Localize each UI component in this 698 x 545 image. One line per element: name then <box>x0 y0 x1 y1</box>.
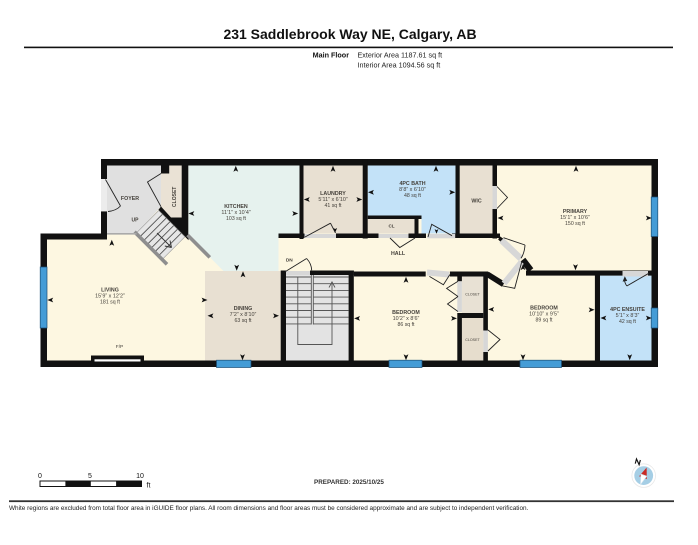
svg-text:41 sq ft: 41 sq ft <box>324 203 342 209</box>
svg-text:86 sq ft: 86 sq ft <box>397 322 415 328</box>
svg-text:CLOSET: CLOSET <box>465 292 480 296</box>
svg-text:PREPARED: 2025/10/25: PREPARED: 2025/10/25 <box>314 479 384 486</box>
svg-text:WIC: WIC <box>471 199 481 205</box>
svg-text:F/P: F/P <box>116 344 123 350</box>
svg-text:ft: ft <box>147 483 151 490</box>
svg-text:103 sq ft: 103 sq ft <box>226 216 246 222</box>
svg-text:0: 0 <box>38 473 42 480</box>
svg-text:5: 5 <box>88 473 92 480</box>
svg-text:HALL: HALL <box>391 251 406 257</box>
svg-text:48 sq ft: 48 sq ft <box>404 193 422 199</box>
svg-text:Exterior Area 1187.61 sq ft: Exterior Area 1187.61 sq ft <box>358 51 443 60</box>
svg-text:42 sq ft: 42 sq ft <box>619 319 637 325</box>
svg-text:181 sq ft: 181 sq ft <box>100 300 120 306</box>
svg-text:DN: DN <box>286 257 293 263</box>
svg-text:UP: UP <box>132 218 140 224</box>
svg-text:CLOSET: CLOSET <box>172 187 178 207</box>
svg-text:63 sq ft: 63 sq ft <box>234 318 252 324</box>
svg-text:Main Floor: Main Floor <box>313 51 350 60</box>
svg-text:231 Saddlebrook Way NE, Calgar: 231 Saddlebrook Way NE, Calgary, AB <box>223 26 476 42</box>
svg-text:FOYER: FOYER <box>121 196 139 202</box>
svg-text:White regions are excluded fro: White regions are excluded from total fl… <box>9 505 529 512</box>
svg-text:Interior Area 1094.56 sq ft: Interior Area 1094.56 sq ft <box>358 60 441 69</box>
svg-text:89 sq ft: 89 sq ft <box>535 318 553 324</box>
svg-text:150 sq ft: 150 sq ft <box>565 221 585 227</box>
svg-text:10: 10 <box>136 473 144 480</box>
svg-text:CL: CL <box>388 224 394 229</box>
svg-text:CLOSET: CLOSET <box>465 338 480 342</box>
